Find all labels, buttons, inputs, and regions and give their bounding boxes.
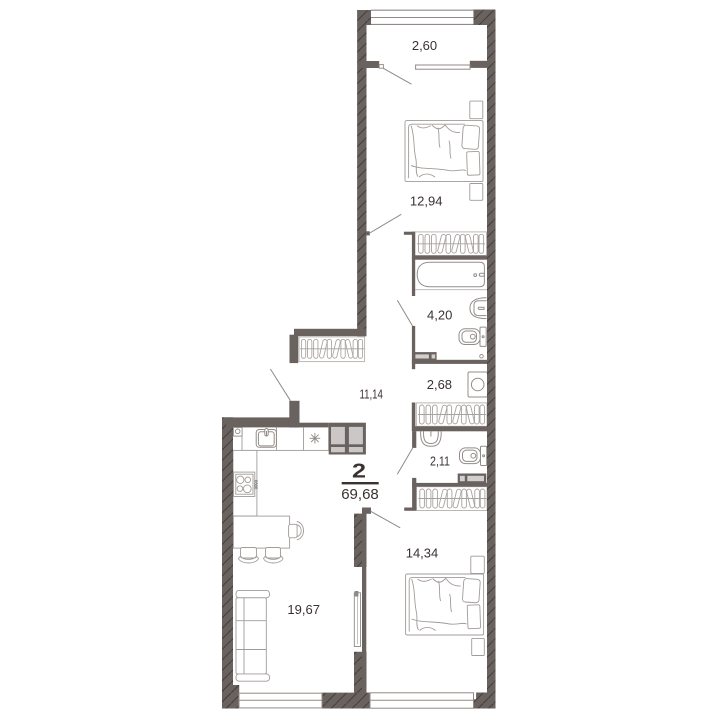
svg-text:14,34: 14,34 (406, 545, 439, 560)
svg-text:2,11: 2,11 (430, 454, 450, 469)
svg-text:0600: 0600 (254, 480, 259, 490)
svg-text:2,68: 2,68 (427, 377, 452, 392)
svg-text:12,94: 12,94 (410, 194, 443, 209)
svg-text:11,14: 11,14 (359, 387, 383, 402)
svg-text:19,67: 19,67 (287, 602, 320, 617)
svg-text:69,68: 69,68 (341, 486, 379, 503)
svg-text:2,60: 2,60 (412, 38, 437, 53)
svg-text:4,20: 4,20 (427, 308, 452, 323)
svg-text:2: 2 (352, 461, 366, 483)
